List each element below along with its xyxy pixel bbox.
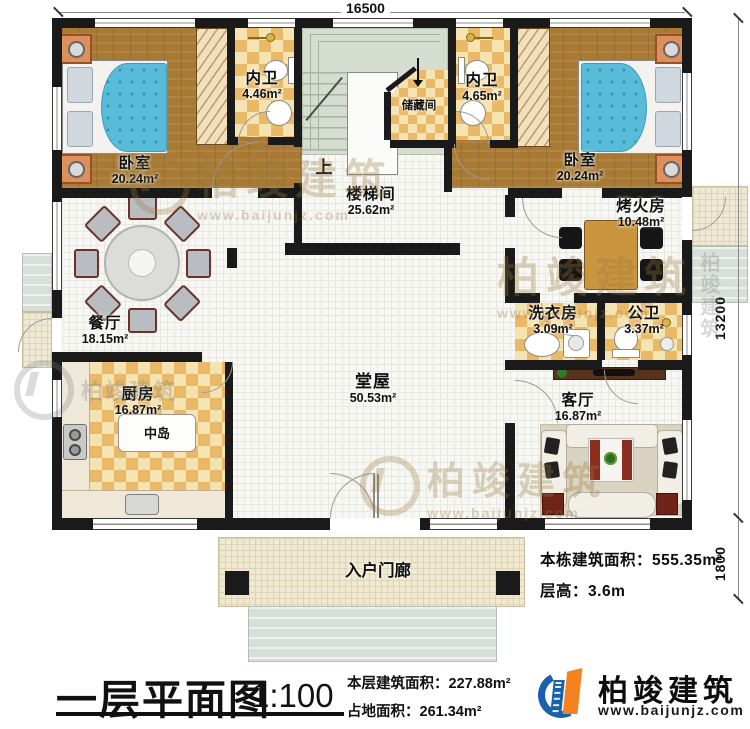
room-label-bath-right: 内卫 4.65m² <box>462 72 502 103</box>
fire-room-chair <box>640 259 663 281</box>
kitchen-sink-icon <box>125 494 159 515</box>
storage-left-wall <box>384 92 391 140</box>
shower-head-icon <box>466 33 475 42</box>
wall <box>505 360 602 370</box>
room-label-laundry: 洗衣房 3.09m² <box>528 305 578 336</box>
dining-chair <box>186 249 211 278</box>
floor-drain-icon <box>660 337 674 351</box>
wall <box>505 195 515 217</box>
wall <box>227 28 235 145</box>
room-label-bath-left: 内卫 4.46m² <box>242 70 282 101</box>
wall <box>225 362 233 518</box>
window <box>456 18 503 28</box>
sofa-pillow <box>662 461 678 479</box>
end-table <box>542 493 564 515</box>
window <box>682 420 692 500</box>
window <box>95 18 195 28</box>
window <box>52 202 62 290</box>
wall <box>227 137 238 145</box>
island-label: 中岛 <box>144 425 170 443</box>
wardrobe-left <box>196 28 229 145</box>
room-label-dining: 餐厅 18.15m² <box>82 315 129 346</box>
window <box>333 18 413 28</box>
wardrobe-right <box>517 28 550 147</box>
window <box>545 518 650 530</box>
window <box>430 518 497 530</box>
stair-up-arrow-line <box>417 58 419 80</box>
front-door-opening <box>330 518 420 530</box>
bed-left <box>62 60 168 154</box>
dim-line-right <box>738 18 739 518</box>
building-area-line: 本栋建筑面积：555.35m² <box>540 548 722 570</box>
wall <box>510 28 518 147</box>
stair-up-arrowhead <box>413 80 423 87</box>
coffee-rug-stripe <box>590 440 600 480</box>
room-label-living: 客厅 16.87m² <box>555 392 602 423</box>
shower-head-icon <box>266 33 275 42</box>
end-table <box>656 493 678 515</box>
pillow-icon <box>67 67 93 103</box>
wall <box>597 303 605 360</box>
room-label-hall: 堂屋 50.53m² <box>350 372 397 405</box>
window <box>248 18 295 28</box>
window <box>682 73 692 150</box>
wall <box>638 360 692 370</box>
porch-column-left <box>225 571 249 595</box>
porch-column-right <box>496 571 520 595</box>
brand-logo-icon <box>536 664 592 724</box>
fire-room-table <box>584 220 638 290</box>
wall <box>227 248 237 268</box>
burner <box>69 429 81 441</box>
room-label-porch: 入户门廊 <box>345 562 411 581</box>
room-label-toilet: 公卫 3.37m² <box>624 305 664 336</box>
right-steps <box>692 246 748 303</box>
wall <box>258 188 302 198</box>
pillow-icon <box>655 67 681 103</box>
brand-url: www.baijunjz.com <box>598 702 744 718</box>
room-label-stairwell: 楼梯间 25.62m² <box>346 186 396 217</box>
toilet-tank <box>612 349 640 358</box>
nightstand <box>60 154 92 184</box>
wall <box>62 188 212 198</box>
sofa-pillow <box>544 461 560 479</box>
wall <box>444 148 452 192</box>
blanket <box>101 63 167 152</box>
dining-chair <box>128 308 157 333</box>
front-door-leaf <box>373 474 375 518</box>
stove-icon <box>63 424 87 460</box>
wall <box>508 188 562 198</box>
wall <box>294 28 302 147</box>
wall <box>602 188 692 198</box>
wall <box>390 140 456 148</box>
sofa-pillow <box>544 437 561 455</box>
plan-title: 一层平面图 <box>56 666 271 726</box>
bed-right <box>578 60 684 154</box>
room-label-fire-room: 烤火房 10.48m² <box>616 198 666 229</box>
window <box>52 380 62 417</box>
stair-up-label: 上 <box>316 158 333 178</box>
plan-scale: 1:100 <box>251 677 334 715</box>
dining-chair <box>128 195 157 220</box>
plant-icon <box>604 452 617 465</box>
front-steps <box>248 606 497 662</box>
fire-room-chair <box>559 259 582 281</box>
shower-arm <box>248 37 266 39</box>
sofa-bottom <box>568 492 656 518</box>
room-label-kitchen: 厨房 16.87m² <box>115 386 162 417</box>
right-door-opening <box>682 197 692 240</box>
dim-top: 16500 <box>341 0 390 16</box>
wall <box>285 243 460 255</box>
left-door-opening <box>52 318 62 352</box>
floor-height-line: 层高：3.6m <box>540 579 625 601</box>
blanket <box>581 63 647 152</box>
wall <box>574 293 692 303</box>
window <box>682 315 692 355</box>
footprint-line: 占地面积：261.34m² <box>347 700 482 721</box>
front-door-leaf <box>377 474 379 518</box>
fire-room-chair <box>640 227 663 249</box>
window <box>550 18 650 28</box>
title-underline <box>56 712 344 716</box>
room-label-storage: 储藏间 <box>402 96 437 114</box>
pillow-icon <box>67 111 93 147</box>
coffee-rug-stripe <box>622 440 632 480</box>
dining-table-center <box>128 249 156 277</box>
wall <box>448 28 456 146</box>
floor-plan: 卧室 20.24m² 内卫 4.46m² 储藏间 上 楼梯间 25.62m² 内… <box>0 0 750 729</box>
nightstand <box>60 34 92 64</box>
dim-line-porch <box>738 520 739 600</box>
dining-chair <box>74 249 99 278</box>
shower-arm <box>475 37 493 39</box>
wall <box>505 293 540 303</box>
fire-room-chair <box>559 227 582 249</box>
dim-right: 13200 <box>712 296 728 343</box>
wall <box>505 423 515 518</box>
room-label-bedroom-right: 卧室 20.24m² <box>557 152 604 183</box>
window <box>93 518 197 530</box>
washer-drum <box>568 335 584 351</box>
sofa-pillow <box>662 437 679 455</box>
left-steps <box>22 253 52 312</box>
room-label-bedroom-left: 卧室 20.24m² <box>112 155 159 186</box>
floor-area-line: 本层建筑面积：227.88m² <box>347 672 511 693</box>
pillow-icon <box>655 111 681 147</box>
wall <box>62 352 202 362</box>
window <box>52 87 62 150</box>
burner <box>69 444 81 456</box>
